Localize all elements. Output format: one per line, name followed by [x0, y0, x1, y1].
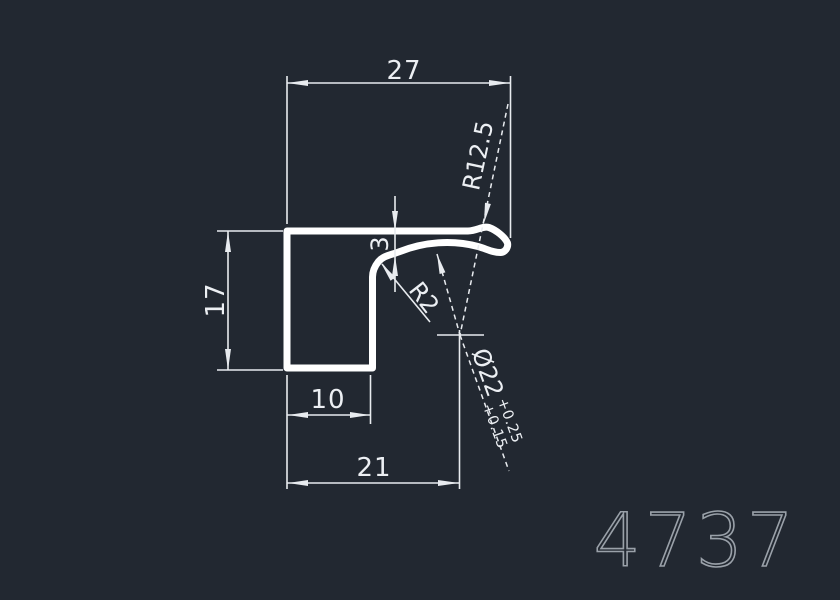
dim-leg-width-label: 10 — [310, 385, 345, 415]
arrow-down-left-icon — [484, 203, 491, 223]
leader-diameter-label-group: Ø22 +0.25 +0.15 — [460, 345, 526, 451]
leader-outer-radius: R12.5 — [457, 104, 508, 335]
arrow-up-left-icon — [437, 254, 445, 274]
leader-outer-radius-label: R12.5 — [457, 118, 499, 192]
arrow-left-icon — [287, 80, 308, 86]
arrow-up-icon — [225, 231, 231, 252]
dim-top-width-label: 27 — [386, 56, 421, 86]
dim-left-height-label: 17 — [201, 282, 231, 317]
arrow-right-icon — [489, 80, 510, 86]
dim-center-offset-label: 21 — [356, 453, 391, 483]
leader-diameter: Ø22 +0.25 +0.15 — [437, 254, 527, 471]
cad-drawing-canvas: 27 17 3 10 — [0, 0, 840, 600]
arrow-left-icon — [288, 412, 308, 418]
arrow-right-icon — [438, 480, 459, 486]
dim-left-height: 17 — [201, 231, 283, 370]
dim-flange-thickness-label: 3 — [366, 236, 394, 251]
profile-outline — [287, 227, 508, 368]
arrow-up-icon — [392, 256, 398, 277]
arrow-right-icon — [350, 412, 370, 418]
leader-inner-radius-label: R2 — [403, 277, 445, 319]
arrow-left-icon — [288, 480, 308, 486]
leader-inner-radius: R2 — [381, 263, 445, 322]
part-number: 4737 — [594, 504, 798, 578]
arrow-down-icon — [225, 349, 231, 370]
profile-view — [287, 227, 508, 368]
leader-diameter-label: Ø22 — [466, 345, 509, 401]
